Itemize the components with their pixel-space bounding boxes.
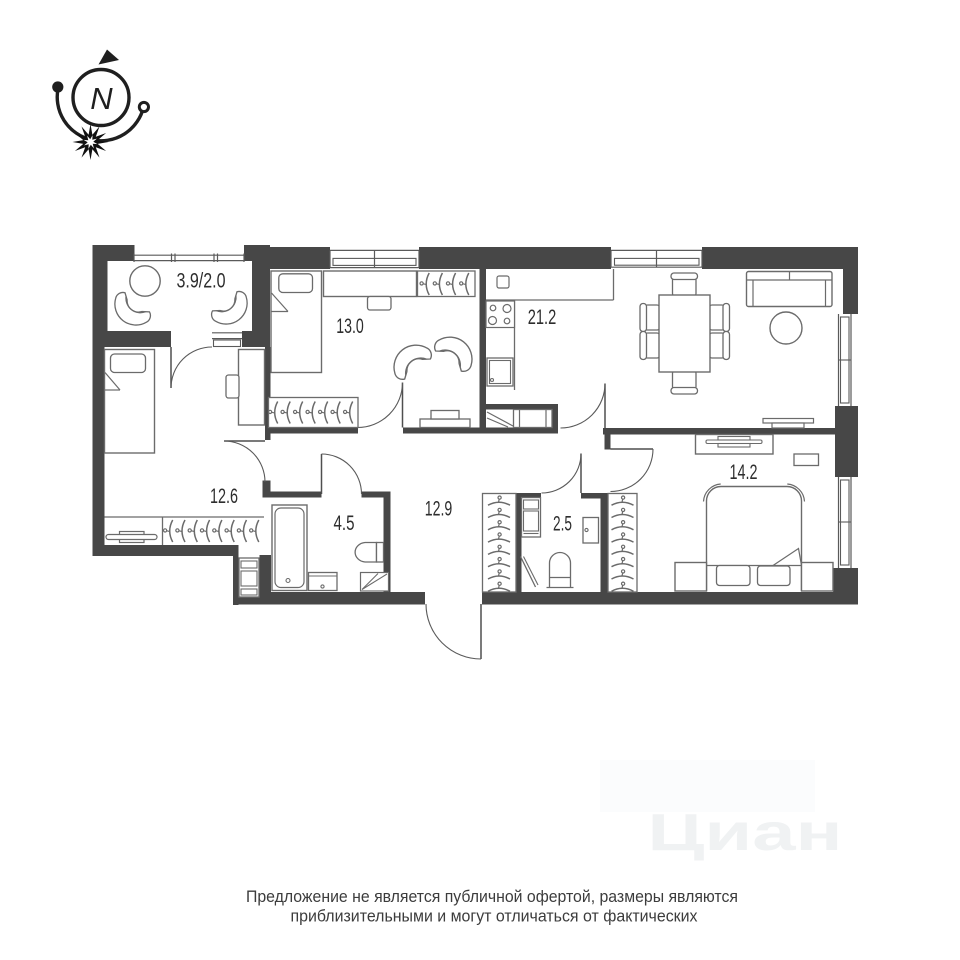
svg-text:Циан: Циан <box>648 804 843 862</box>
svg-text:Предложение не является публич: Предложение не является публичной оферто… <box>246 888 738 906</box>
svg-text:12.9: 12.9 <box>425 498 453 521</box>
svg-text:2.5: 2.5 <box>553 513 572 536</box>
svg-text:приблизительными и могут отлич: приблизительными и могут отличаться от ф… <box>291 908 698 926</box>
svg-text:13.0: 13.0 <box>336 315 364 338</box>
svg-text:21.2: 21.2 <box>528 306 557 329</box>
svg-text:14.2: 14.2 <box>730 461 758 484</box>
svg-text:4.5: 4.5 <box>334 512 355 535</box>
svg-text:N: N <box>90 81 113 116</box>
svg-text:12.6: 12.6 <box>210 485 238 508</box>
svg-text:3.9/2.0: 3.9/2.0 <box>177 270 226 293</box>
